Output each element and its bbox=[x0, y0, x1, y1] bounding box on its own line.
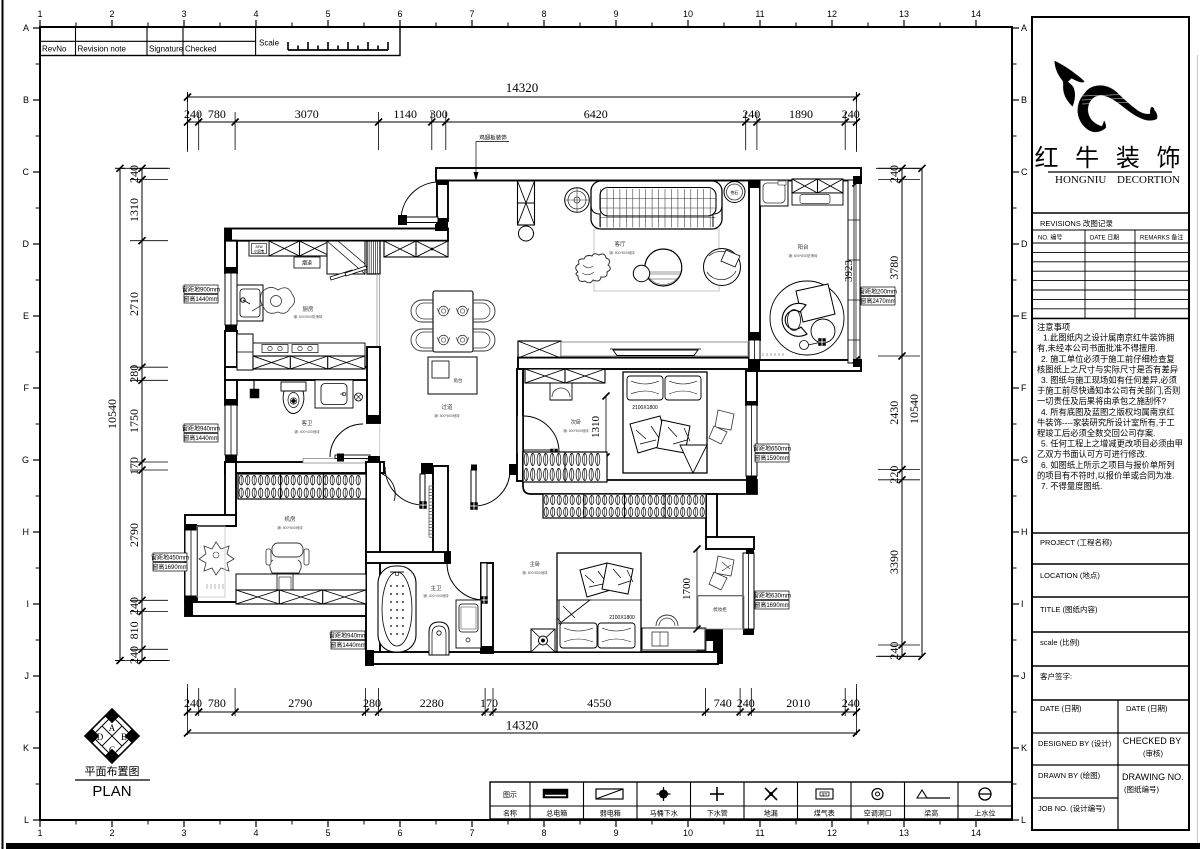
svg-text:煤气表: 煤气表 bbox=[814, 809, 835, 818]
svg-text:E: E bbox=[1021, 311, 1027, 321]
svg-text:9: 9 bbox=[613, 828, 618, 838]
svg-text:铺: 800*800防滑砖: 铺: 800*800防滑砖 bbox=[294, 314, 323, 319]
svg-text:主卫: 主卫 bbox=[430, 584, 442, 592]
svg-text:红 牛 装 饰: 红 牛 装 饰 bbox=[1034, 145, 1185, 172]
svg-text:L: L bbox=[24, 815, 29, 825]
svg-text:窗距地940mm: 窗距地940mm bbox=[329, 631, 367, 639]
svg-text:D: D bbox=[1021, 239, 1028, 249]
svg-text:J: J bbox=[1021, 671, 1026, 681]
svg-text:RevNo: RevNo bbox=[42, 45, 67, 54]
svg-text:铺: 800*800地砖: 铺: 800*800地砖 bbox=[522, 570, 548, 575]
svg-text:240: 240 bbox=[184, 107, 202, 121]
svg-text:C: C bbox=[23, 167, 30, 177]
svg-text:780: 780 bbox=[208, 696, 226, 710]
svg-text:窗距地940mm: 窗距地940mm bbox=[182, 424, 220, 432]
svg-text:空调洞口: 空调洞口 bbox=[864, 809, 892, 818]
svg-text:D: D bbox=[23, 239, 30, 249]
svg-text:220: 220 bbox=[887, 466, 901, 484]
svg-text:总电箱: 总电箱 bbox=[546, 809, 567, 818]
svg-text:阳台: 阳台 bbox=[797, 243, 809, 251]
svg-text:2: 2 bbox=[109, 9, 114, 19]
svg-text:F: F bbox=[24, 383, 30, 393]
svg-text:梁高: 梁高 bbox=[924, 809, 938, 818]
svg-text:1750: 1750 bbox=[127, 409, 141, 433]
svg-text:10540: 10540 bbox=[105, 399, 119, 429]
svg-text:13: 13 bbox=[899, 9, 909, 19]
svg-text:A: A bbox=[1021, 23, 1027, 33]
svg-text:G: G bbox=[1021, 455, 1028, 465]
svg-text:L: L bbox=[1021, 815, 1026, 825]
svg-text:DATE (日期): DATE (日期) bbox=[1040, 704, 1082, 713]
svg-text:上水位: 上水位 bbox=[975, 809, 996, 818]
svg-text:窗高1690mm: 窗高1690mm bbox=[152, 563, 187, 571]
svg-text:4550: 4550 bbox=[587, 696, 611, 710]
svg-text:窗高1440mm: 窗高1440mm bbox=[330, 641, 365, 649]
svg-text:LOCATION (地点): LOCATION (地点) bbox=[1040, 570, 1100, 580]
svg-text:14320: 14320 bbox=[506, 718, 539, 733]
svg-text:REMARKS 备注: REMARKS 备注 bbox=[1140, 234, 1183, 242]
svg-text:240: 240 bbox=[842, 107, 860, 121]
svg-text:6: 6 bbox=[397, 828, 402, 838]
svg-text:4. 所有底图及蓝图之版权均属南京红: 4. 所有底图及蓝图之版权均属南京红 bbox=[1041, 407, 1175, 417]
svg-text:Scale: Scale bbox=[259, 39, 280, 48]
svg-text:过道: 过道 bbox=[441, 403, 453, 411]
svg-text:scale (比例): scale (比例) bbox=[1040, 637, 1080, 647]
svg-text:2100X1800: 2100X1800 bbox=[609, 615, 635, 621]
svg-text:6420: 6420 bbox=[584, 107, 608, 121]
svg-text:地漏: 地漏 bbox=[764, 809, 778, 818]
svg-text:NO. 编号: NO. 编号 bbox=[1038, 234, 1062, 242]
svg-text:DECORTION: DECORTION bbox=[1117, 174, 1180, 186]
svg-text:6: 6 bbox=[397, 9, 402, 19]
svg-text:B: B bbox=[121, 732, 127, 742]
svg-text:14: 14 bbox=[971, 828, 981, 838]
svg-text:JSW: JSW bbox=[255, 245, 263, 249]
svg-text:2430: 2430 bbox=[887, 401, 901, 425]
svg-text:1140: 1140 bbox=[393, 107, 417, 121]
svg-text:300: 300 bbox=[430, 107, 448, 121]
svg-text:B: B bbox=[1021, 95, 1027, 105]
svg-text:窗高1440mm: 窗高1440mm bbox=[183, 434, 218, 442]
svg-text:烟道: 烟道 bbox=[302, 260, 312, 267]
svg-text:12: 12 bbox=[827, 828, 837, 838]
svg-text:1: 1 bbox=[37, 828, 42, 838]
svg-text:2280: 2280 bbox=[420, 696, 444, 710]
svg-text:170: 170 bbox=[480, 696, 498, 710]
svg-text:铺: 800*800地砖: 铺: 800*800地砖 bbox=[434, 413, 460, 418]
svg-text:280: 280 bbox=[363, 696, 381, 710]
svg-text:REVISIONS 改图记录: REVISIONS 改图记录 bbox=[1040, 218, 1113, 228]
svg-text:厨房: 厨房 bbox=[302, 305, 314, 313]
svg-text:C: C bbox=[1021, 167, 1028, 177]
svg-text:Revision note: Revision note bbox=[78, 45, 127, 54]
svg-text:3070: 3070 bbox=[295, 107, 319, 121]
svg-text:TITLE (图纸内容): TITLE (图纸内容) bbox=[1040, 604, 1098, 614]
svg-text:3780: 3780 bbox=[887, 256, 901, 280]
svg-text:牛装饰----家装研究所设计室所有,于工: 牛装饰----家装研究所设计室所有,于工 bbox=[1037, 417, 1175, 427]
svg-text:3: 3 bbox=[181, 828, 186, 838]
svg-text:弱电箱: 弱电箱 bbox=[600, 809, 621, 818]
svg-text:主卧: 主卧 bbox=[529, 560, 541, 568]
svg-text:H: H bbox=[1021, 527, 1028, 537]
svg-text:5: 5 bbox=[325, 828, 330, 838]
svg-text:2790: 2790 bbox=[288, 696, 312, 710]
svg-text:程竣工后必须全数交回公司存案.: 程竣工后必须全数交回公司存案. bbox=[1037, 428, 1155, 438]
svg-text:A: A bbox=[23, 23, 29, 33]
svg-text:240: 240 bbox=[887, 165, 901, 183]
svg-text:平面布置图: 平面布置图 bbox=[85, 765, 140, 778]
svg-text:铺: 800*800地砖: 铺: 800*800地砖 bbox=[609, 250, 635, 255]
svg-text:A: A bbox=[109, 723, 116, 733]
svg-text:810: 810 bbox=[127, 621, 141, 639]
svg-text:2: 2 bbox=[109, 828, 114, 838]
svg-text:9: 9 bbox=[613, 9, 618, 19]
svg-text:窗高1690mm: 窗高1690mm bbox=[754, 601, 789, 609]
svg-text:8: 8 bbox=[541, 9, 546, 19]
svg-text:DRAWING NO.: DRAWING NO. bbox=[1122, 772, 1184, 782]
svg-text:窗距地200mm: 窗距地200mm bbox=[859, 287, 897, 295]
svg-text:I: I bbox=[26, 599, 29, 609]
svg-text:一切责任及后果将由承包之施刮怀?: 一切责任及后果将由承包之施刮怀? bbox=[1037, 396, 1166, 406]
svg-text:3: 3 bbox=[181, 9, 186, 19]
svg-text:窗距地450mm: 窗距地450mm bbox=[151, 553, 189, 561]
svg-text:E: E bbox=[23, 311, 29, 321]
svg-text:CHECKED BY: CHECKED BY bbox=[1123, 736, 1182, 746]
svg-text:K: K bbox=[1021, 743, 1027, 753]
svg-text:1310: 1310 bbox=[127, 198, 141, 222]
svg-text:客户签字:: 客户签字: bbox=[1040, 671, 1072, 681]
svg-text:梳妆柜: 梳妆柜 bbox=[713, 606, 727, 613]
svg-text:抱石: 抱石 bbox=[731, 189, 739, 195]
svg-text:14: 14 bbox=[971, 9, 981, 19]
svg-text:(图纸编号): (图纸编号) bbox=[1124, 784, 1159, 794]
svg-text:13: 13 bbox=[899, 828, 909, 838]
svg-text:乙双方书面认可方可进行修改.: 乙双方书面认可方可进行修改. bbox=[1037, 449, 1147, 459]
svg-text:1890: 1890 bbox=[789, 107, 813, 121]
svg-text:小厨宝: 小厨宝 bbox=[254, 249, 265, 254]
svg-text:8: 8 bbox=[541, 828, 546, 838]
svg-text:次卧: 次卧 bbox=[570, 418, 582, 426]
svg-text:JOB NO. (设计编号): JOB NO. (设计编号) bbox=[1038, 803, 1106, 813]
svg-text:12: 12 bbox=[827, 9, 837, 19]
svg-text:780: 780 bbox=[208, 107, 226, 121]
svg-text:窗距地900mm: 窗距地900mm bbox=[182, 285, 220, 293]
svg-text:窗距地630mm: 窗距地630mm bbox=[753, 591, 791, 599]
svg-text:2790: 2790 bbox=[127, 523, 141, 547]
svg-text:2010: 2010 bbox=[786, 696, 810, 710]
svg-text:客卫: 客卫 bbox=[301, 419, 313, 427]
svg-text:240: 240 bbox=[842, 696, 860, 710]
svg-text:170: 170 bbox=[127, 457, 141, 475]
svg-text:鸡翅板装饰: 鸡翅板装饰 bbox=[479, 134, 507, 142]
svg-text:核图纸上之尺寸与实际尺寸是否有差异: 核图纸上之尺寸与实际尺寸是否有差异 bbox=[1037, 364, 1178, 374]
svg-text:4: 4 bbox=[253, 9, 258, 19]
svg-text:10: 10 bbox=[683, 9, 693, 19]
svg-text:240: 240 bbox=[184, 696, 202, 710]
svg-text:K: K bbox=[23, 743, 29, 753]
svg-text:煤气: 煤气 bbox=[821, 792, 827, 797]
svg-text:H: H bbox=[23, 527, 30, 537]
svg-text:PROJECT (工程名称): PROJECT (工程名称) bbox=[1040, 537, 1112, 547]
svg-text:窗距地650mm: 窗距地650mm bbox=[753, 444, 791, 452]
svg-text:240: 240 bbox=[737, 696, 755, 710]
svg-text:机房: 机房 bbox=[284, 515, 296, 523]
svg-text:名称: 名称 bbox=[503, 809, 517, 818]
svg-text:马桶下水: 马桶下水 bbox=[650, 809, 678, 818]
svg-text:240: 240 bbox=[127, 646, 141, 664]
svg-text:1310: 1310 bbox=[590, 416, 602, 439]
svg-text:10540: 10540 bbox=[907, 394, 921, 424]
svg-text:5. 任何工程上之增减更改项目必须由甲: 5. 任何工程上之增减更改项目必须由甲 bbox=[1041, 439, 1183, 449]
svg-text:240: 240 bbox=[127, 165, 141, 183]
svg-text:的项目有不符时,以报价单或合同为准.: 的项目有不符时,以报价单或合同为准. bbox=[1037, 470, 1174, 480]
svg-text:DATE (日期): DATE (日期) bbox=[1126, 704, 1168, 713]
svg-text:PLAN: PLAN bbox=[92, 783, 131, 800]
svg-text:7: 7 bbox=[469, 9, 474, 19]
svg-text:铺: 800*800防滑砖: 铺: 800*800防滑砖 bbox=[789, 253, 818, 258]
svg-text:740: 740 bbox=[714, 696, 732, 710]
svg-text:图示: 图示 bbox=[503, 791, 517, 799]
svg-text:240: 240 bbox=[742, 107, 760, 121]
svg-text:3390: 3390 bbox=[887, 550, 901, 574]
svg-text:10: 10 bbox=[683, 828, 693, 838]
svg-text:铺: 400*400地砖: 铺: 400*400地砖 bbox=[423, 593, 449, 598]
svg-text:1: 1 bbox=[37, 9, 42, 19]
svg-text:11: 11 bbox=[755, 9, 764, 19]
svg-text:4: 4 bbox=[253, 828, 258, 838]
svg-text:G: G bbox=[22, 455, 29, 465]
svg-text:1.此图纸内之设计属南京红牛装饰拥: 1.此图纸内之设计属南京红牛装饰拥 bbox=[1043, 333, 1174, 343]
svg-text:窗高1440mm: 窗高1440mm bbox=[183, 295, 218, 303]
svg-text:5: 5 bbox=[325, 9, 330, 19]
svg-text:铺: 800*800地砖: 铺: 800*800地砖 bbox=[277, 525, 303, 530]
svg-text:J: J bbox=[25, 671, 30, 681]
svg-text:2. 施工单位必须于施工前仔细检查复: 2. 施工单位必须于施工前仔细检查复 bbox=[1041, 354, 1175, 364]
svg-text:280: 280 bbox=[127, 365, 141, 383]
svg-text:6. 如图纸上所示之项目与报价单所列: 6. 如图纸上所示之项目与报价单所列 bbox=[1041, 460, 1175, 470]
svg-text:注意事项: 注意事项 bbox=[1037, 322, 1070, 332]
svg-text:B: B bbox=[23, 95, 29, 105]
svg-text:HONGNIU: HONGNIU bbox=[1055, 174, 1106, 186]
svg-text:F: F bbox=[1021, 383, 1027, 393]
svg-text:11: 11 bbox=[755, 828, 764, 838]
svg-text:DRAWN BY (绘图): DRAWN BY (绘图) bbox=[1038, 770, 1101, 780]
svg-text:铺: 400*400地砖: 铺: 400*400地砖 bbox=[294, 429, 320, 434]
svg-text:铺: 800*800地砖: 铺: 800*800地砖 bbox=[563, 428, 589, 433]
svg-text:7: 7 bbox=[469, 828, 474, 838]
svg-text:7. 不得量度图纸.: 7. 不得量度图纸. bbox=[1041, 481, 1102, 491]
svg-text:3. 图纸与施工现场如有任何差异,必须: 3. 图纸与施工现场如有任何差异,必须 bbox=[1041, 375, 1177, 385]
svg-text:窗高2470mm: 窗高2470mm bbox=[860, 297, 895, 305]
svg-text:(审核): (审核) bbox=[1143, 748, 1163, 758]
svg-text:240: 240 bbox=[887, 642, 901, 660]
svg-text:C: C bbox=[109, 745, 115, 755]
svg-text:有,未经本公司书面批准不得擅用.: 有,未经本公司书面批准不得擅用. bbox=[1037, 343, 1158, 353]
svg-text:1700: 1700 bbox=[681, 578, 693, 601]
svg-text:角台: 角台 bbox=[454, 377, 463, 384]
svg-text:Signature: Signature bbox=[149, 45, 184, 54]
svg-text:2100X1800: 2100X1800 bbox=[632, 405, 658, 411]
svg-text:D: D bbox=[97, 732, 104, 742]
svg-text:DATE 日期: DATE 日期 bbox=[1090, 234, 1119, 242]
svg-text:240: 240 bbox=[127, 597, 141, 615]
svg-text:客厅: 客厅 bbox=[614, 240, 626, 248]
svg-text:3923: 3923 bbox=[843, 260, 855, 283]
svg-text:2710: 2710 bbox=[127, 292, 141, 316]
svg-text:于施工前尽快通知本公司有关部门,否则: 于施工前尽快通知本公司有关部门,否则 bbox=[1037, 386, 1180, 396]
svg-text:I: I bbox=[1021, 599, 1024, 609]
svg-text:窗高1590mm: 窗高1590mm bbox=[754, 454, 789, 462]
svg-text:14320: 14320 bbox=[506, 80, 539, 95]
svg-text:Checked: Checked bbox=[185, 45, 217, 54]
svg-text:DESIGNED BY (设计): DESIGNED BY (设计) bbox=[1038, 738, 1112, 748]
svg-text:下水管: 下水管 bbox=[707, 809, 728, 818]
